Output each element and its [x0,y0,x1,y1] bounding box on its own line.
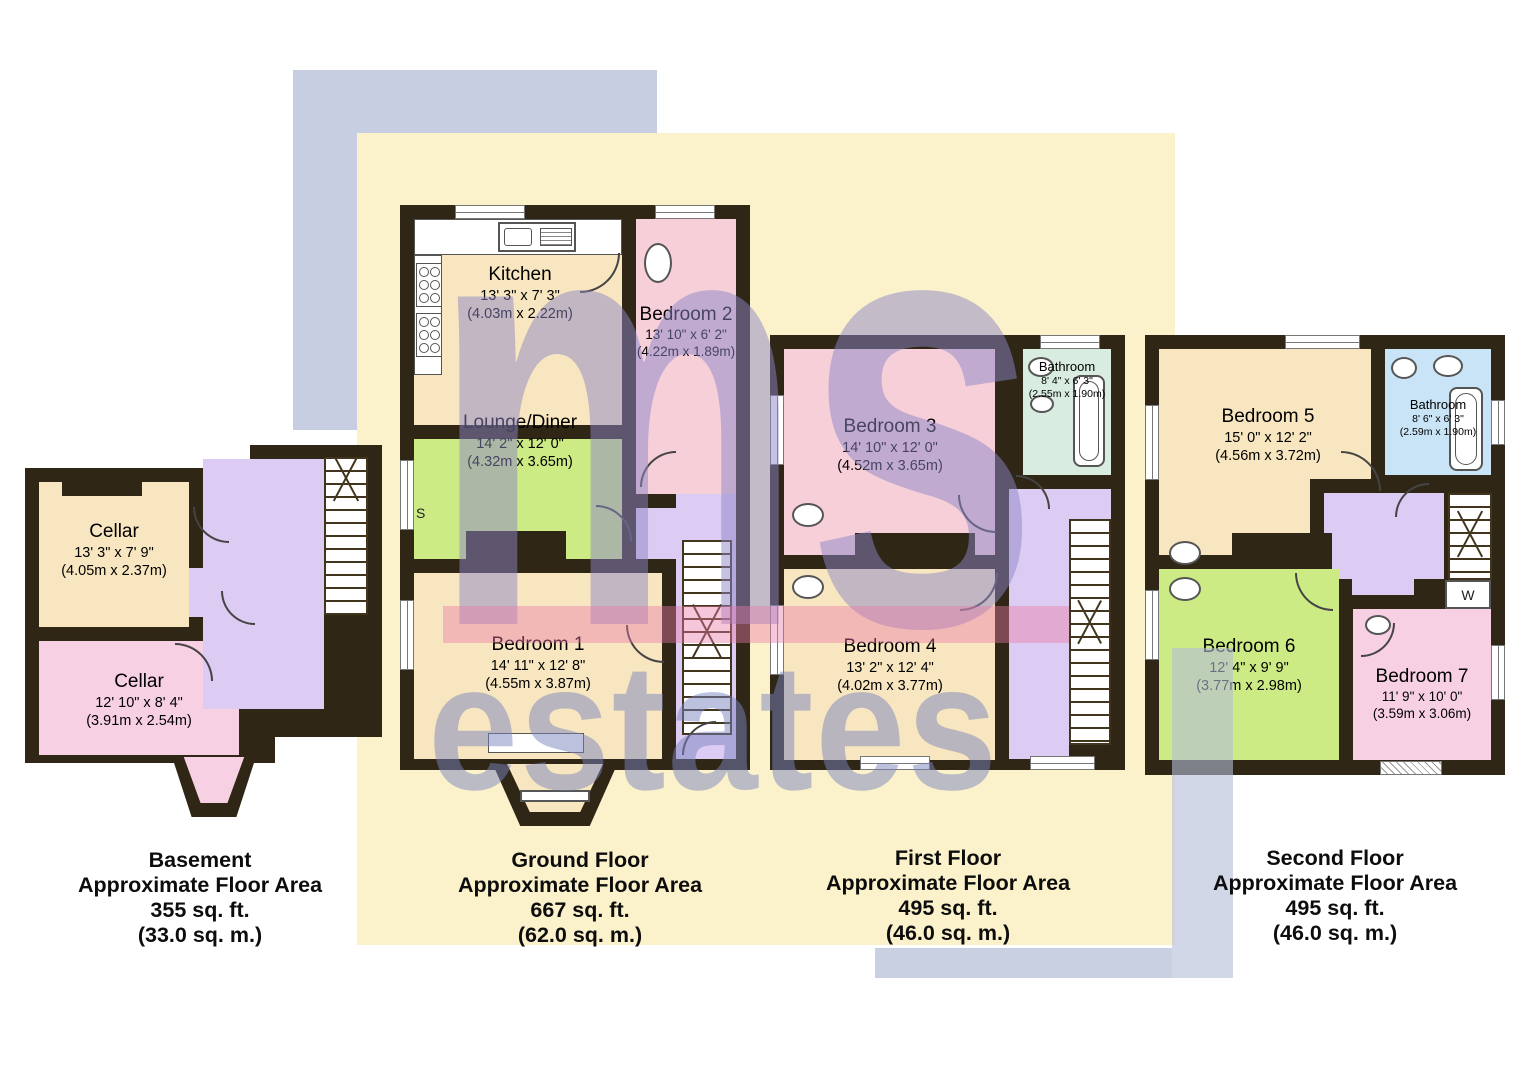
window [770,395,784,465]
window [400,460,414,530]
floor-sqft: 495 sq. ft. [1170,896,1500,921]
room-dims-m: (4.03m x 2.22m) [430,305,610,323]
basin-icon [792,575,824,599]
room-dims-ft: 8' 6" x 6' 3" [1390,413,1486,426]
room-name: Bedroom 5 [1173,405,1363,429]
room-name: Bathroom [1023,359,1111,375]
toilet-icon [1391,357,1417,379]
room-name: Cellar [39,520,189,544]
sink-icon [1433,355,1463,377]
room-name: Cellar [39,670,239,694]
bay-window [520,790,590,802]
room-name: Bedroom 7 [1353,665,1491,689]
room-label-bedroom-3: Bedroom 3 14' 10" x 12' 0" (4.52m x 3.65… [800,415,980,475]
window [1491,400,1505,445]
room-label-bedroom-7: Bedroom 7 11' 9" x 10' 0" (3.59m x 3.06m… [1353,665,1491,723]
room-name: Kitchen [430,263,610,287]
room-label-cellar-rear: Cellar 13' 3" x 7' 9" (4.05m x 2.37m) [39,520,189,580]
room-dims-ft: 15' 0" x 12' 2" [1173,429,1363,447]
drainer-icon [540,228,572,246]
bedroom7-bottom-opening [1380,761,1442,775]
room-label-bedroom-2: Bedroom 2 13' 10" x 6' 2" (4.22m x 1.89m… [632,303,740,361]
room-dims-m: (4.32m x 3.65m) [430,453,610,471]
bedroom3-chimney-breast [855,533,975,569]
kitchen-sink-icon [498,222,576,252]
basement-plan: Cellar 13' 3" x 7' 9" (4.05m x 2.37m) Ce… [25,445,385,845]
room-dims-ft: 11' 9" x 10' 0" [1353,689,1491,706]
room-dims-m: (4.22m x 1.89m) [632,344,740,361]
watermark-pink-stripe [443,606,1069,643]
ground-floor-plan: S Kitchen 13' 3" x 7' 3" (4.03m x 2.22m)… [400,205,755,845]
floor-sqft: 667 sq. ft. [415,898,745,923]
wardrobe-icon [1169,577,1201,601]
bedroom1-window-seat [488,733,584,753]
floor-sqm: (46.0 sq. m.) [1170,921,1500,946]
room-dims-m: (4.05m x 2.37m) [39,562,189,580]
background-gray-rect-bottom [875,948,1172,978]
floor-title: Basement [35,848,365,873]
room-dims-m: (4.56m x 3.72m) [1173,447,1363,465]
window [1145,405,1159,480]
window [1145,590,1159,660]
room-name: Lounge/Diner [430,411,610,435]
landing-wall [636,559,676,573]
ground-landing [636,508,676,559]
room-name: Bathroom [1390,397,1486,413]
room-label-kitchen: Kitchen 13' 3" x 7' 3" (4.03m x 2.22m) [430,263,610,323]
storage-annotation: S [416,505,425,521]
room-dims-m: (2.59m x 1.90m) [1390,426,1486,439]
room-label-lounge-diner: Lounge/Diner 14' 2" x 12' 0" (4.32m x 3.… [430,411,610,471]
room-name: Bedroom 2 [632,303,740,327]
room-dims-m: (4.55m x 3.87m) [448,675,628,693]
wardrobe-icon [1169,541,1201,565]
second-stairs [1448,493,1492,580]
basement-floor-label: Basement Approximate Floor Area 355 sq. … [35,848,365,948]
room-dims-ft: 14' 2" x 12' 0" [430,435,610,453]
room-dims-m: (2.55m x 1.90m) [1023,388,1111,401]
window [1040,335,1100,349]
room-dims-ft: 12' 10" x 8' 4" [39,694,239,712]
bedroom5-chimney-breast [1232,533,1332,569]
floor-title: Second Floor [1170,846,1500,871]
first-floor-label: First Floor Approximate Floor Area 495 s… [783,846,1113,946]
room-dims-ft: 13' 3" x 7' 9" [39,544,189,562]
window [655,205,715,219]
basin-icon [792,503,824,527]
lounge-chimney-breast [466,531,566,559]
window [1030,756,1095,770]
room-dims-ft: 8' 4" x 6' 3" [1023,375,1111,388]
first-landing-top [1069,489,1111,519]
room-dims-ft: 13' 10" x 6' 2" [632,327,740,344]
second-floor-label: Second Floor Approximate Floor Area 495 … [1170,846,1500,946]
room-label-bedroom-4: Bedroom 4 13' 2" x 12' 4" (4.02m x 3.77m… [800,635,980,695]
first-stairs [1069,519,1111,745]
floor-area-label: Approximate Floor Area [415,873,745,898]
window [400,600,414,670]
cellar-rear-chimney [62,482,142,496]
floor-sqm: (62.0 sq. m.) [415,923,745,948]
room-dims-ft: 14' 11" x 12' 8" [448,657,628,675]
floor-sqm: (46.0 sq. m.) [783,921,1113,946]
floor-area-label: Approximate Floor Area [783,871,1113,896]
room-dims-m: (3.59m x 3.06m) [1353,706,1491,723]
room-dims-ft: 13' 2" x 12' 4" [800,659,980,677]
room-dims-m: (4.52m x 3.65m) [800,457,980,475]
ground-floor-label: Ground Floor Approximate Floor Area 667 … [415,848,745,948]
second-landing-lower [1352,569,1414,595]
room-dims-m: (3.91m x 2.54m) [39,712,239,730]
floor-area-label: Approximate Floor Area [35,873,365,898]
floor-area-label: Approximate Floor Area [1170,871,1500,896]
room-dims-m: (4.02m x 3.77m) [800,677,980,695]
floor-title: Ground Floor [415,848,745,873]
bedroom2-basin-icon [644,243,672,283]
floor-sqm: (33.0 sq. m.) [35,923,365,948]
floor-sqft: 495 sq. ft. [783,896,1113,921]
room-label-first-bathroom: Bathroom 8' 4" x 6' 3" (2.55m x 1.90m) [1023,359,1111,402]
sink-bowl-icon [504,228,532,246]
floor-sqft: 355 sq. ft. [35,898,365,923]
floorplan-canvas: Cellar 13' 3" x 7' 9" (4.05m x 2.37m) Ce… [0,0,1528,1080]
window [1285,335,1360,349]
window [1491,645,1505,700]
basement-stairs [324,457,368,615]
room-dims-ft: 13' 3" x 7' 3" [430,287,610,305]
wardrobe-annotation: W [1461,587,1474,603]
first-floor-plan: Bedroom 3 14' 10" x 12' 0" (4.52m x 3.65… [770,335,1130,775]
room-label-cellar-front: Cellar 12' 10" x 8' 4" (3.91m x 2.54m) [39,670,239,730]
room-name: Bedroom 3 [800,415,980,439]
window [455,205,525,219]
room-label-second-bathroom: Bathroom 8' 6" x 6' 3" (2.59m x 1.90m) [1390,397,1486,440]
room-label-bedroom-5: Bedroom 5 15' 0" x 12' 2" (4.56m x 3.72m… [1173,405,1363,465]
room-dims-ft: 14' 10" x 12' 0" [800,439,980,457]
window [860,756,930,770]
floor-title: First Floor [783,846,1113,871]
wardrobe-nook: W [1445,580,1491,609]
